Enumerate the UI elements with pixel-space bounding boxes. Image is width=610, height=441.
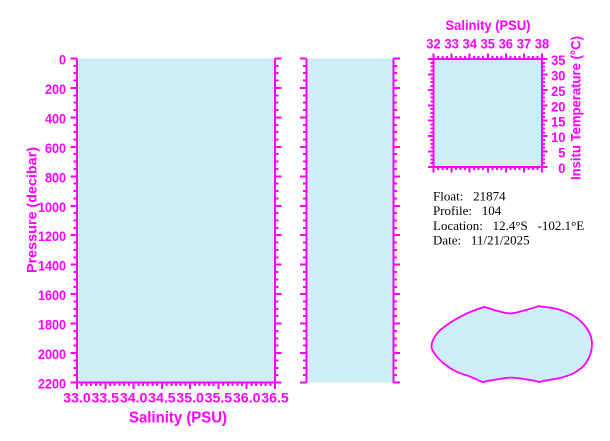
svg-text:0: 0: [558, 160, 565, 176]
svg-text:30: 30: [551, 67, 566, 83]
svg-text:34.0: 34.0: [120, 389, 148, 405]
svg-text:10: 10: [551, 129, 566, 145]
svg-text:15: 15: [551, 114, 566, 130]
svg-text:0: 0: [59, 52, 66, 68]
svg-text:33.5: 33.5: [92, 389, 120, 405]
svg-text:Pressure (decibar): Pressure (decibar): [24, 147, 40, 273]
svg-text:1000: 1000: [38, 199, 66, 215]
svg-text:37: 37: [517, 36, 532, 52]
svg-text:33: 33: [444, 36, 459, 52]
svg-text:33.0: 33.0: [63, 389, 91, 405]
svg-text:1800: 1800: [38, 317, 66, 333]
svg-text:1600: 1600: [38, 287, 66, 303]
svg-text:1400: 1400: [38, 258, 66, 274]
svg-text:600: 600: [45, 140, 66, 156]
svg-text:32: 32: [426, 36, 441, 52]
svg-text:35: 35: [551, 52, 566, 68]
svg-text:400: 400: [45, 110, 66, 126]
svg-text:Salinity (PSU): Salinity (PSU): [129, 410, 227, 427]
svg-text:5: 5: [558, 145, 565, 161]
svg-text:Salinity (PSU): Salinity (PSU): [446, 17, 531, 33]
svg-text:34: 34: [463, 36, 478, 52]
svg-text:34.5: 34.5: [148, 389, 176, 405]
svg-text:25: 25: [551, 83, 566, 99]
svg-text:Profile: 104: Profile: 104: [433, 203, 502, 218]
svg-text:20: 20: [551, 98, 566, 114]
svg-text:35: 35: [481, 36, 496, 52]
svg-text:Location: 12.4°S -102.1°E: Location: 12.4°S -102.1°E: [433, 218, 584, 233]
svg-text:1200: 1200: [38, 228, 66, 244]
svg-text:36: 36: [499, 36, 514, 52]
svg-text:Insitu Temperature (°C): Insitu Temperature (°C): [569, 36, 584, 180]
svg-text:2200: 2200: [38, 376, 66, 392]
svg-text:Date: 11/21/2025: Date: 11/21/2025: [433, 233, 530, 248]
svg-text:36.0: 36.0: [233, 389, 261, 405]
svg-text:38: 38: [535, 36, 550, 52]
svg-text:200: 200: [45, 81, 66, 97]
svg-text:35.0: 35.0: [176, 389, 204, 405]
svg-text:36.5: 36.5: [261, 389, 289, 405]
svg-text:35.5: 35.5: [205, 389, 233, 405]
svg-text:800: 800: [45, 169, 66, 185]
svg-text:2000: 2000: [38, 346, 66, 362]
svg-text:Float: 21874: Float: 21874: [433, 189, 506, 204]
